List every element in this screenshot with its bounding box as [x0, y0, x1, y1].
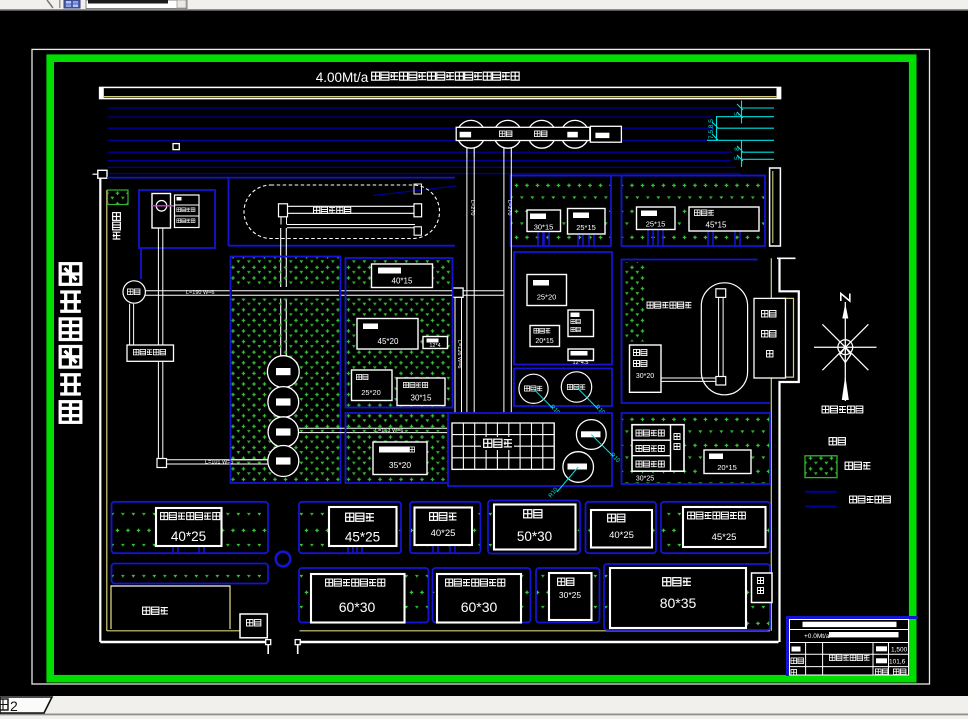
- svg-text:35*20: 35*20: [389, 460, 411, 470]
- svg-text:L=126 W=6: L=126 W=6: [456, 340, 462, 368]
- svg-text:12*4.5: 12*4.5: [573, 360, 589, 366]
- svg-text:L=101 W=6: L=101 W=6: [205, 459, 233, 465]
- svg-text:80*35: 80*35: [660, 595, 697, 611]
- svg-text:45*20: 45*20: [378, 337, 399, 346]
- svg-text:L=270: L=270: [506, 200, 512, 215]
- svg-text:L=190 W=6: L=190 W=6: [186, 290, 214, 296]
- svg-text:60*30: 60*30: [339, 599, 376, 615]
- svg-text:25*15: 25*15: [576, 223, 596, 232]
- svg-text:20*15: 20*15: [717, 463, 737, 472]
- svg-text:40*25: 40*25: [609, 530, 634, 541]
- svg-text:30*25: 30*25: [559, 590, 581, 600]
- svg-text:7.5,8.5: 7.5,8.5: [708, 119, 715, 139]
- svg-text:5: 5: [734, 156, 741, 160]
- svg-text:60*30: 60*30: [461, 599, 498, 615]
- svg-text:25*20: 25*20: [361, 388, 381, 397]
- svg-text:40*25: 40*25: [431, 528, 456, 539]
- svg-text:45*15: 45*15: [706, 221, 727, 230]
- svg-text:L=270: L=270: [469, 200, 475, 215]
- svg-text:1,500: 1,500: [891, 647, 908, 654]
- svg-text:30*25: 30*25: [636, 476, 654, 483]
- svg-text:8: 8: [734, 147, 741, 151]
- svg-text:25*20: 25*20: [537, 293, 557, 302]
- svg-text:20*15: 20*15: [535, 338, 553, 345]
- svg-text:12*4: 12*4: [429, 343, 440, 349]
- svg-text:4.00Mt/a: 4.00Mt/a: [316, 70, 369, 85]
- svg-text:40*25: 40*25: [171, 529, 206, 544]
- svg-text:30*15: 30*15: [411, 394, 432, 403]
- svg-text:45*25: 45*25: [345, 530, 380, 545]
- svg-text:+0.0Mt/a: +0.0Mt/a: [804, 633, 830, 640]
- svg-text:30*15: 30*15: [534, 223, 554, 232]
- svg-text:5: 5: [734, 112, 741, 116]
- svg-text:50*30: 50*30: [517, 529, 552, 544]
- svg-text:30*20: 30*20: [636, 373, 654, 380]
- svg-text:101,6: 101,6: [889, 659, 906, 666]
- svg-text:40*15: 40*15: [392, 277, 413, 286]
- svg-text:25*15: 25*15: [646, 220, 666, 229]
- svg-text:45*25: 45*25: [712, 532, 737, 543]
- svg-text:2: 2: [10, 698, 18, 714]
